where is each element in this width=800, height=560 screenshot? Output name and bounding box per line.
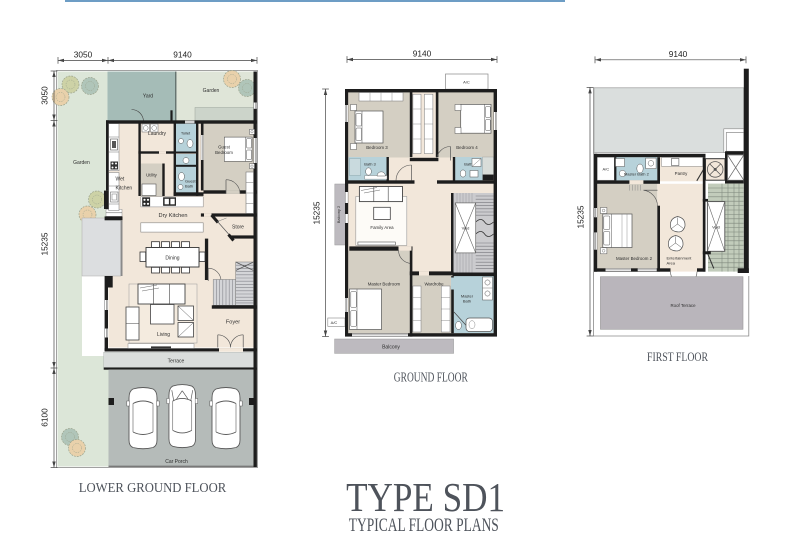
svg-text:Dining: Dining [165,256,179,262]
svg-text:Wet: Wet [116,177,125,183]
svg-text:Bedroom: Bedroom [215,150,233,155]
svg-text:GROUND FLOOR: GROUND FLOOR [394,370,468,385]
svg-text:Void: Void [712,225,720,230]
svg-text:Guest: Guest [218,145,230,150]
svg-text:LOWER GROUND FLOOR: LOWER GROUND FLOOR [79,481,227,496]
svg-text:Dry Kitchen: Dry Kitchen [159,213,188,219]
svg-text:Foyer: Foyer [226,320,240,326]
svg-text:Kitchen: Kitchen [116,186,133,192]
svg-text:3050: 3050 [40,86,50,105]
svg-text:Master Bedroom 2: Master Bedroom 2 [616,256,653,261]
svg-text:Toilet: Toilet [181,131,191,136]
svg-text:3050: 3050 [74,50,93,60]
svg-text:Bedroom 4: Bedroom 4 [456,145,478,150]
svg-text:9140: 9140 [173,50,192,60]
svg-text:Bath: Bath [185,184,193,189]
svg-text:Living: Living [157,332,170,338]
svg-text:Bath 3: Bath 3 [364,162,376,167]
svg-text:TYPICAL FLOOR PLANS: TYPICAL FLOOR PLANS [349,516,499,536]
svg-text:Garden: Garden [73,160,90,166]
svg-text:15235: 15235 [312,201,322,224]
svg-text:FIRST FLOOR: FIRST FLOOR [647,350,709,364]
svg-text:Roof Terrace: Roof Terrace [670,303,696,308]
svg-text:Master Bath 2: Master Bath 2 [624,172,650,177]
svg-text:Terrace: Terrace [168,359,185,365]
svg-text:Bath: Bath [463,299,471,304]
svg-text:Family Area: Family Area [370,225,394,230]
svg-text:Bedroom 3: Bedroom 3 [366,145,388,150]
svg-text:Balcony 2: Balcony 2 [336,205,341,223]
svg-text:Store: Store [232,225,244,231]
svg-text:A/C: A/C [602,167,609,172]
svg-text:Master Bedroom: Master Bedroom [368,282,401,287]
svg-text:9140: 9140 [413,49,432,59]
svg-text:15235: 15235 [40,232,50,255]
svg-text:Balcony: Balcony [382,345,400,351]
svg-text:A/C: A/C [463,80,470,85]
svg-text:9140: 9140 [669,49,688,59]
svg-text:6100: 6100 [40,408,50,427]
svg-text:Garden: Garden [203,88,220,94]
svg-text:TYPE SD1: TYPE SD1 [346,474,505,520]
svg-text:Utility: Utility [146,173,158,178]
svg-text:Void: Void [462,226,470,231]
svg-text:Laundry: Laundry [148,131,167,137]
svg-text:Car Porch: Car Porch [165,459,188,465]
svg-text:Area: Area [667,261,676,266]
svg-text:15235: 15235 [576,205,586,228]
svg-text:A/C: A/C [331,320,338,325]
svg-text:Pantry: Pantry [675,171,688,176]
svg-text:Yard: Yard [143,94,153,100]
